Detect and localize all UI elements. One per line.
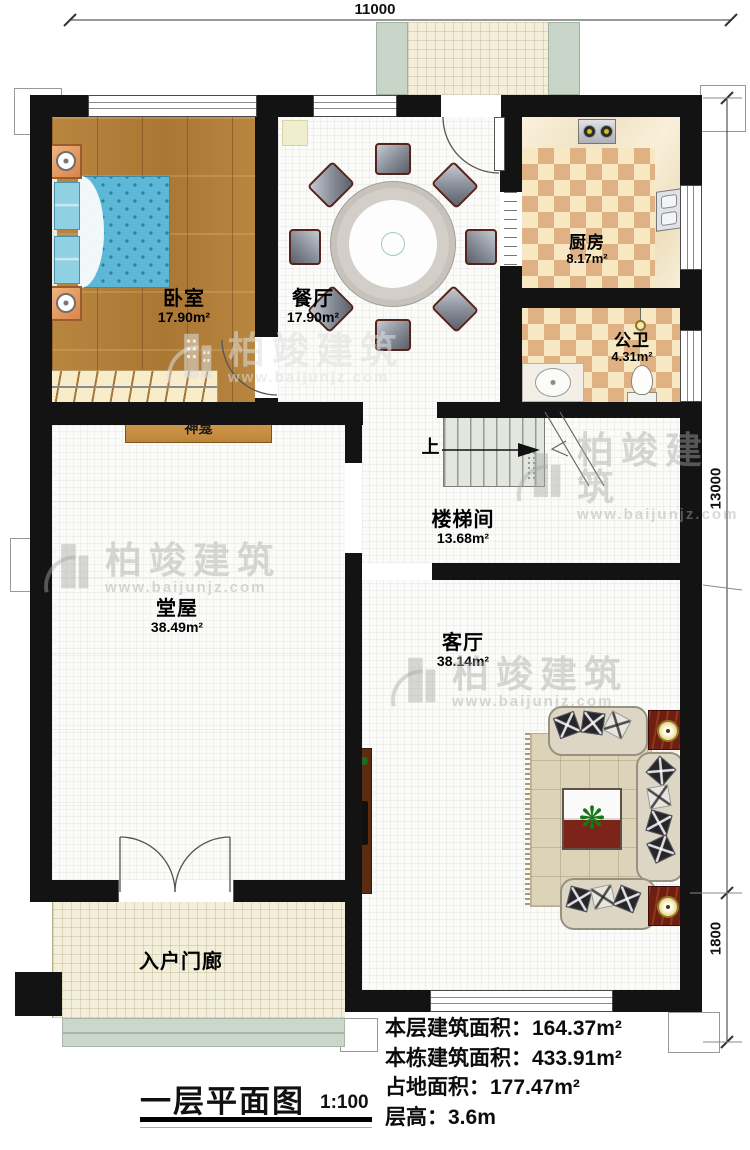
hall-floor — [52, 425, 345, 880]
wall — [345, 553, 362, 1012]
table-lamp-icon — [657, 896, 679, 918]
entry-step — [62, 1033, 345, 1047]
room-label-stairwell: 楼梯间 13.68m² — [432, 509, 495, 547]
window — [680, 330, 702, 402]
bed-pillow — [54, 236, 80, 284]
room-label-hall: 堂屋 38.49m² — [151, 598, 203, 636]
stat-line: 层高：3.6m — [385, 1103, 622, 1133]
lazy-susan-icon — [381, 232, 405, 256]
stairs-up-label: 上 — [422, 437, 441, 457]
dim-right-main: 13000 — [708, 459, 725, 519]
building-stats: 本层建筑面积：164.37m² 本栋建筑面积：433.91m² 占地面积：177… — [385, 1014, 622, 1132]
wardrobe — [48, 370, 218, 403]
dining-chair — [375, 143, 411, 175]
door-leaf — [494, 117, 505, 171]
door-opening — [255, 337, 278, 398]
wall — [437, 402, 702, 418]
title-underline — [140, 1117, 372, 1122]
back-porch-side-panel — [548, 22, 580, 95]
title-underline-thin — [140, 1127, 372, 1128]
table-lamp-icon — [56, 151, 76, 171]
window — [680, 185, 702, 270]
door-opening — [118, 880, 234, 902]
wall — [30, 402, 363, 425]
table-lamp-icon — [56, 293, 76, 313]
dim-top: 11000 — [340, 1, 410, 18]
wall-stub-marker — [10, 538, 32, 592]
sofa-pillow — [646, 784, 671, 809]
floor-plan-canvas: 神龛 ❋ — [0, 0, 750, 1150]
back-porch-floor — [408, 22, 548, 95]
nightstand — [48, 286, 82, 321]
dining-chair — [465, 229, 497, 265]
door-opening — [441, 95, 501, 117]
drawing-scale: 1:100 — [320, 1092, 369, 1114]
kitchen-floor — [522, 148, 655, 288]
dim-right-lower: 1800 — [708, 909, 725, 969]
bed-pillow — [54, 182, 80, 230]
room-label-dining: 餐厅 17.90m² — [287, 288, 339, 326]
sink-bowl — [661, 194, 677, 209]
table-lamp-icon — [657, 720, 679, 742]
toilet-icon — [631, 365, 653, 395]
room-label-living: 客厅 38.14m² — [437, 632, 489, 670]
stairs — [443, 413, 545, 487]
burner-icon — [600, 125, 613, 138]
stat-line: 本层建筑面积：164.37m² — [385, 1014, 622, 1044]
stat-line: 本栋建筑面积：433.91m² — [385, 1044, 622, 1074]
column-marker — [700, 85, 746, 132]
room-label-bathroom: 公卫 4.31m² — [611, 331, 652, 365]
nightstand — [48, 144, 82, 179]
rug-fringe — [525, 733, 530, 907]
stat-line: 占地面积：177.47m² — [385, 1073, 622, 1103]
room-label-bedroom: 卧室 17.90m² — [158, 288, 210, 326]
wall — [30, 95, 52, 902]
sofa-pillow — [581, 711, 606, 736]
bath-vanity — [522, 363, 584, 402]
pendant-lamp-icon — [635, 320, 646, 331]
pendant-cord — [640, 306, 641, 321]
wall — [345, 418, 362, 463]
sink-bowl — [661, 211, 677, 226]
page-title: 一层平面图 — [140, 1076, 305, 1121]
wall — [432, 563, 702, 580]
entry-step — [62, 1018, 345, 1033]
dining-chair — [375, 319, 411, 351]
plant-icon: ❋ — [574, 800, 610, 836]
kitchen-sink — [656, 188, 682, 232]
stove — [578, 119, 616, 144]
window — [430, 990, 613, 1012]
window — [88, 95, 257, 117]
column-marker — [668, 1012, 720, 1053]
wash-basin-icon — [535, 368, 571, 397]
dining-corner-cabinet — [282, 120, 308, 146]
room-label-entry-porch: 入户门廊 — [139, 951, 223, 973]
dining-chair — [289, 229, 321, 265]
porch-pillar — [15, 972, 62, 1016]
sofa-pillow — [590, 884, 616, 910]
wall — [500, 288, 702, 308]
burner-icon — [583, 125, 596, 138]
room-label-kitchen: 厨房 8.17m² — [566, 233, 607, 267]
window — [313, 95, 397, 117]
column-marker — [340, 1018, 378, 1052]
back-porch-side-panel — [376, 22, 408, 95]
sliding-door — [500, 192, 522, 266]
